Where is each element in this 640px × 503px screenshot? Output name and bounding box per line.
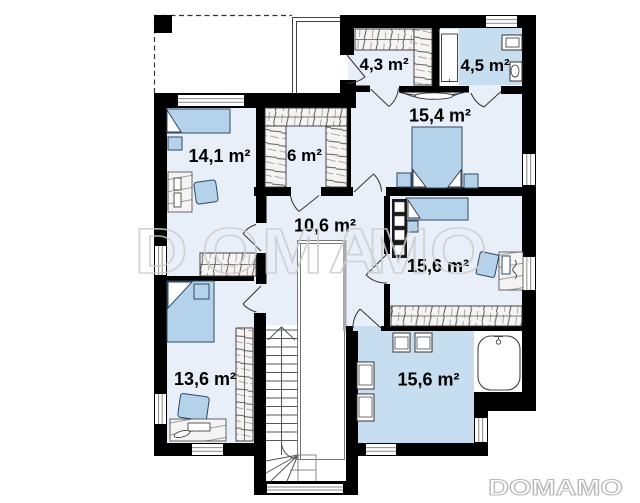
svg-text:15,6 m²: 15,6 m² <box>398 370 460 390</box>
svg-text:14,1 m²: 14,1 m² <box>189 146 251 166</box>
svg-text:15,4 m²: 15,4 m² <box>409 106 471 126</box>
svg-text:4,3 m²: 4,3 m² <box>360 55 409 74</box>
svg-text:4,5 m²: 4,5 m² <box>461 56 510 75</box>
svg-text:13,6 m²: 13,6 m² <box>174 369 236 389</box>
svg-text:6 m²: 6 m² <box>287 146 322 165</box>
svg-text:DOMAMO: DOMAMO <box>135 215 488 286</box>
svg-text:DOMAMO: DOMAMO <box>488 475 623 500</box>
